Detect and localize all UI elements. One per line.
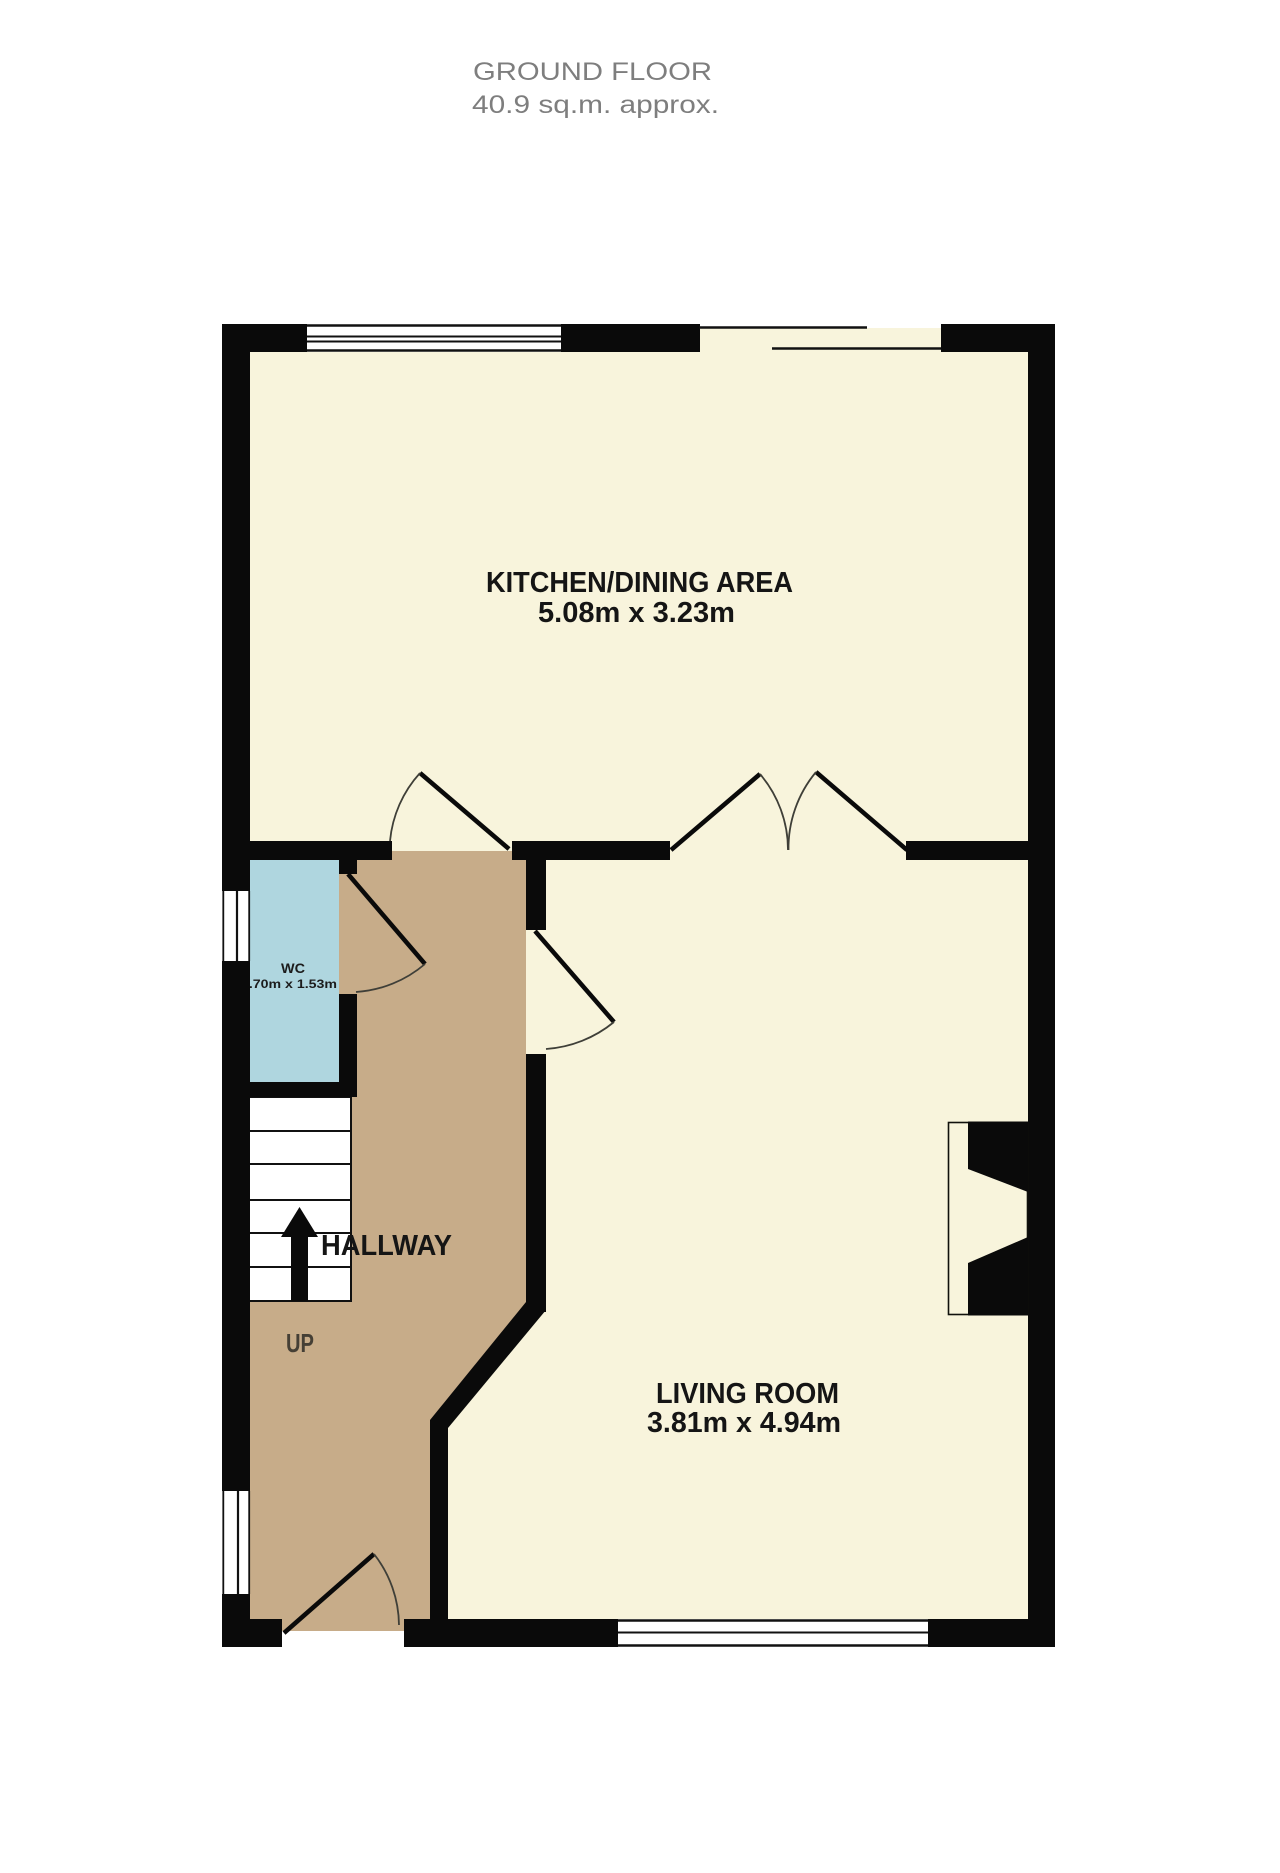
svg-text:UP: UP bbox=[286, 1328, 314, 1358]
svg-text:GROUND FLOOR: GROUND FLOOR bbox=[473, 58, 712, 86]
svg-text:KITCHEN/DINING AREA: KITCHEN/DINING AREA bbox=[486, 567, 793, 599]
svg-text:3.81m x 4.94m: 3.81m x 4.94m bbox=[647, 1407, 841, 1439]
svg-text:WC: WC bbox=[281, 960, 305, 976]
svg-text:0.70m x 1.53m: 0.70m x 1.53m bbox=[241, 977, 337, 991]
svg-text:40.9 sq.m. approx.: 40.9 sq.m. approx. bbox=[472, 91, 719, 119]
svg-text:5.08m x 3.23m: 5.08m x 3.23m bbox=[538, 597, 735, 629]
svg-text:HALLWAY: HALLWAY bbox=[321, 1230, 452, 1262]
svg-text:LIVING ROOM: LIVING ROOM bbox=[656, 1378, 839, 1410]
